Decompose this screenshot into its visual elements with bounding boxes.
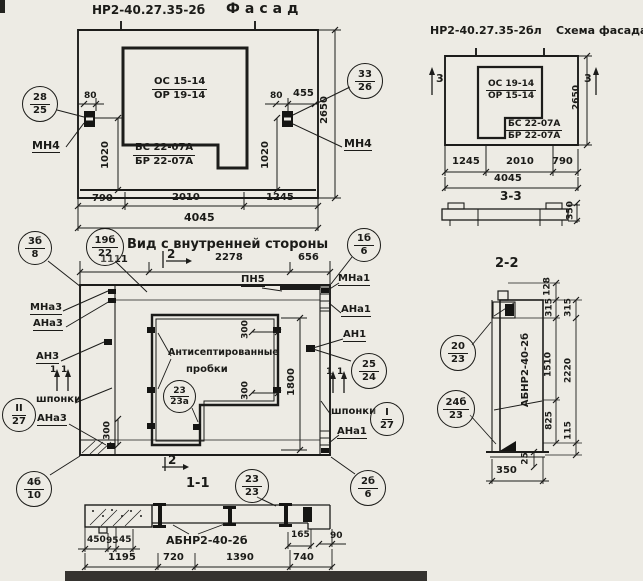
inner-section1-label: 1 <box>50 366 56 375</box>
facade-dim-lines <box>78 30 341 231</box>
inner-label-mna3: МНа3 <box>30 303 62 315</box>
section33-title: 3-3 <box>500 190 522 202</box>
facade-node-left: 28 25 <box>22 86 58 122</box>
inner-dim-ticks <box>115 315 303 453</box>
section11-dim-720: 720 <box>163 553 184 563</box>
section33-profile-joints <box>450 209 562 226</box>
facade-dim-2010: 2010 <box>172 193 200 203</box>
inner-view <box>48 251 355 506</box>
scheme-block-mark: БС 22-07А БР 22-07А <box>506 119 562 143</box>
section11-label-leaders <box>173 522 230 534</box>
scan-bottom-bar <box>65 571 427 581</box>
inner-section2-label-top: 2 <box>167 248 175 260</box>
section22-node-20-23: 2023 <box>440 335 476 371</box>
section22-node-24b-23: 24б23 <box>437 390 475 428</box>
inner-label-an3: АН3 <box>36 352 59 364</box>
section22-dim-25: 25 <box>522 437 531 481</box>
section22-top-connector-plate <box>505 304 514 316</box>
facade-block-mark-top: БС 22-07А <box>133 142 195 156</box>
inner-dim-300-mid: 300 <box>242 369 251 413</box>
section11-label: АБНР2-40-2б <box>166 535 248 546</box>
scheme-dim-790: 790 <box>552 157 573 167</box>
facade-dim-total: 4045 <box>184 212 215 223</box>
inner-corner-tab-br <box>321 448 329 453</box>
scheme-title: Схема фасада <box>556 25 643 36</box>
section11-dim-95: 95 <box>106 537 119 546</box>
section22-dim-2220: 2220 <box>565 349 574 393</box>
facade-window-mark: ОС 15-14 ОР 19-14 <box>152 76 207 102</box>
section22-break-line <box>494 401 542 410</box>
inner-label-ana3-top: АНа3 <box>33 319 63 331</box>
scheme-dim-2010: 2010 <box>506 157 534 167</box>
facade-dim-455: 455 <box>293 89 314 99</box>
facade-anchor-label-left: МН4 <box>32 140 60 153</box>
inner-node-23-23a: 2323а <box>163 380 196 413</box>
inner-title: Вид с внутренней стороны <box>127 238 328 251</box>
facade-anchor-left-slit <box>86 118 93 121</box>
inner-section1-label: 1 <box>337 368 343 377</box>
section11-dim-740: 740 <box>293 553 314 563</box>
blueprint-sheet: НР2-40.27.35-2б Фасад ОС 15-14 ОР 19-14 … <box>0 0 643 581</box>
inner-node-19b-22: 19б22 <box>86 228 124 266</box>
section11-embedded-beams <box>153 503 312 528</box>
inner-node-key-right: I27 <box>370 402 404 436</box>
inner-label-ana3-bottom: АНа3 <box>37 414 67 426</box>
section11-dim-165: 165 <box>291 531 310 540</box>
section33-profile-step-right <box>546 203 562 209</box>
inner-window-frame-outer <box>152 315 278 445</box>
section22-dim-1510: 1510 <box>545 343 554 387</box>
inner-label-an1: АН1 <box>343 330 366 342</box>
facade-dim-1020-left: 1020 <box>101 133 111 177</box>
inner-section1-marks <box>57 374 344 393</box>
section33-profile-step-left <box>448 203 464 209</box>
facade-node-right: 33 26 <box>347 63 383 99</box>
inner-dim-300-left: 300 <box>104 409 113 453</box>
scan-corner-mark <box>0 0 5 13</box>
inner-leader-lines <box>48 257 355 506</box>
section11-dim-1195: 1195 <box>108 553 136 563</box>
section22-dim-315-outer: 315 <box>565 286 574 330</box>
inner-label-ana1-top: АНа1 <box>341 305 371 317</box>
inner-node-key-left: II27 <box>2 398 36 432</box>
facade-anchor-right-slit <box>284 118 291 121</box>
section22-dim-350: 350 <box>496 466 517 476</box>
scheme-window-mark: ОС 19-14 ОР 15-14 <box>486 79 536 103</box>
inner-section2-label-bottom: 2 <box>168 454 176 466</box>
inner-node-2b-6: 2б6 <box>350 470 386 506</box>
section22-top-stub <box>498 291 508 300</box>
scheme-section-arrow-right <box>593 67 599 75</box>
facade-title: Фасад <box>226 2 303 16</box>
facade-window-mark-top: ОС 15-14 <box>152 76 207 90</box>
facade-dim-1020-right: 1020 <box>261 133 271 177</box>
facade-anchor-label-right: МН4 <box>344 138 372 151</box>
facade-dim-ticks <box>75 27 338 231</box>
section11-dim-450: 450 <box>87 536 106 545</box>
inner-dim-300-top: 300 <box>242 308 251 352</box>
scheme-code: НР2-40.27.35-2бл <box>430 25 542 36</box>
inner-note-line2: пробки <box>186 365 228 375</box>
scheme-section-arrow-left <box>429 67 435 75</box>
scheme-dim-total: 4045 <box>494 174 522 184</box>
section33-thickness: 350 <box>567 189 576 233</box>
inner-node-25-24: 2524 <box>351 353 387 389</box>
section22-dim-315-inner: 315 <box>546 286 555 330</box>
inner-dim-2278: 2278 <box>215 253 243 263</box>
inner-pn5-plate <box>280 285 320 290</box>
inner-corner-tab-tr <box>321 288 329 293</box>
inner-node-1b-6: 1б6 <box>347 228 381 262</box>
facade-window-mark-bottom: ОР 19-14 <box>152 90 207 103</box>
scheme-dim-height: 2650 <box>573 76 582 120</box>
inner-node-3b-8: 3б8 <box>18 231 52 265</box>
inner-pn5-label: ПН5 <box>241 275 265 287</box>
scheme-section-mark-right: 3 <box>584 73 592 84</box>
section33-profile-body <box>442 209 568 220</box>
section11-dim-45: 45 <box>119 536 132 545</box>
scheme-dim-1245: 1245 <box>452 157 480 167</box>
facade-dim-80-left: 80 <box>84 92 97 101</box>
scheme-section-mark-left: 3 <box>436 73 444 84</box>
facade-dim-80-right: 80 <box>270 92 283 101</box>
section11-concrete-hatch <box>90 509 141 526</box>
facade-dim-790: 790 <box>92 194 113 204</box>
inner-corner-box-br-lines <box>320 438 330 445</box>
section22-title: 2-2 <box>495 257 519 270</box>
facade-block-mark-bottom: БР 22-07А <box>133 156 195 169</box>
section22-label: АБНР2-40-2б <box>521 325 531 415</box>
inner-dim-656: 656 <box>298 253 319 263</box>
section22-dim-825: 825 <box>546 399 555 443</box>
facade-block-mark: БС 22-07А БР 22-07А <box>133 142 195 168</box>
inner-label-ana1-bottom: АНа1 <box>337 427 367 439</box>
inner-section2-arrow-top <box>186 258 192 264</box>
inner-node-4b-10: 4б10 <box>16 471 52 507</box>
section11-hook <box>99 527 107 533</box>
inner-corner-box-tr-lines <box>320 294 330 308</box>
section11-dim-90: 90 <box>330 532 343 541</box>
section22-dim-115: 115 <box>565 409 574 453</box>
inner-label-shponki-left: шпонки <box>36 395 81 405</box>
inner-note-line1: Антисептированные <box>168 348 279 358</box>
inner-section1-label: 1 <box>61 366 67 375</box>
inner-antiseptic-plugs <box>147 327 281 430</box>
inner-node-23-23: 2323 <box>235 469 269 503</box>
inner-section2-marks <box>162 251 186 471</box>
section11-dim-1390: 1390 <box>226 553 254 563</box>
facade-dim-1245: 1245 <box>266 193 294 203</box>
facade-code: НР2-40.27.35-2б <box>92 4 205 16</box>
inner-dim-1800: 1800 <box>287 360 297 404</box>
section11-title: 1-1 <box>186 477 210 490</box>
inner-section1-label: 1 <box>326 368 332 377</box>
inner-label-mna1: МНа1 <box>338 274 370 286</box>
inner-section2-arrow-bottom <box>183 464 189 470</box>
facade-dim-height: 2650 <box>320 88 330 132</box>
